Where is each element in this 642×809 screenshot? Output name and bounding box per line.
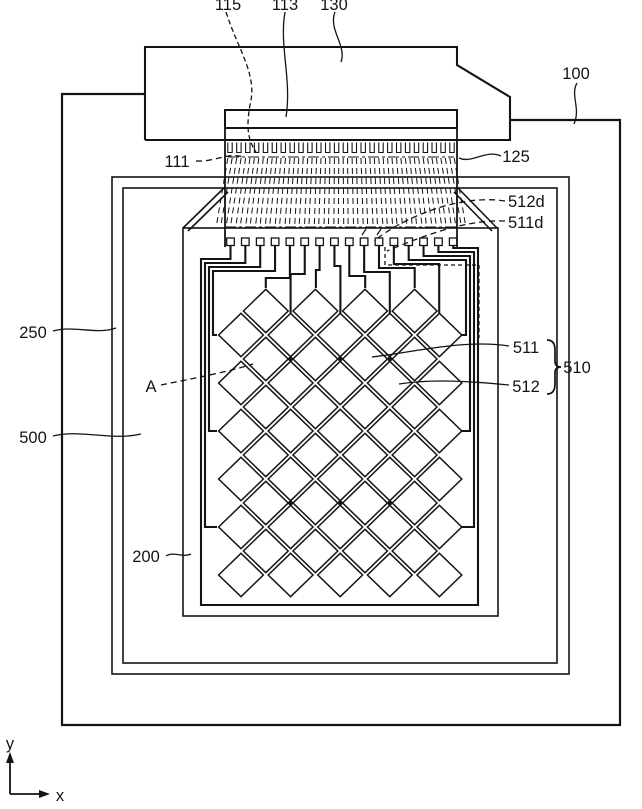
bond-pad	[360, 238, 368, 246]
label-511: 511	[513, 339, 539, 357]
diamond-cell	[293, 529, 338, 572]
bond-pad	[242, 238, 250, 246]
trace-drop-6	[364, 246, 390, 314]
fan-line	[401, 158, 407, 224]
leader-512d	[374, 200, 505, 241]
diamond-cell	[343, 529, 388, 572]
reference-labels: 115 113 130 100 111 125 512d 511d 250 A …	[19, 0, 591, 566]
label-115: 115	[215, 0, 241, 14]
fan-line	[295, 158, 299, 224]
lead-stub	[228, 143, 232, 153]
bonding-bar-113	[225, 110, 457, 128]
fan-line	[299, 158, 303, 224]
label-200: 200	[132, 548, 160, 566]
fan-line	[357, 158, 358, 224]
bridge-node	[386, 500, 393, 507]
fpc-130-outline	[145, 47, 510, 140]
fan-line	[231, 158, 241, 224]
frame-500	[123, 188, 557, 663]
fan-line	[388, 158, 393, 224]
diamond-cell	[268, 505, 313, 548]
fan-line	[338, 158, 339, 224]
diamond-cell	[318, 553, 363, 596]
diamond-cell	[392, 337, 437, 380]
label-130: 130	[320, 0, 348, 14]
lead-stub	[272, 143, 276, 153]
diamond-cell	[293, 337, 338, 380]
lead-stub	[281, 143, 285, 153]
diamond-cell	[293, 385, 338, 428]
fan-line	[348, 158, 349, 224]
lead-stub	[397, 143, 401, 153]
patent-figure: 115 113 130 100 111 125 512d 511d 250 A …	[0, 0, 642, 809]
frame-250	[112, 177, 569, 674]
fan-line	[379, 158, 383, 224]
leader-130	[333, 12, 342, 62]
diamond-cell	[392, 433, 437, 476]
trace-drop-1	[266, 246, 290, 289]
diamond-cell	[367, 505, 412, 548]
trace-left-3	[209, 246, 260, 432]
leader-115	[226, 12, 256, 152]
bond-pad	[346, 238, 354, 246]
pad-tick-marks	[362, 229, 381, 235]
fan-line	[423, 158, 431, 224]
fan-line	[319, 158, 321, 224]
bond-pad	[375, 238, 383, 246]
trace-right-3	[424, 246, 470, 432]
fan-line	[374, 158, 377, 224]
fan-line	[280, 158, 286, 224]
fan-line	[314, 158, 316, 224]
lead-stub	[441, 143, 445, 153]
trace-drop-2	[291, 246, 305, 314]
fan-line	[361, 158, 363, 224]
lead-stub	[361, 143, 365, 153]
bond-pad	[435, 238, 443, 246]
bond-pad	[449, 238, 457, 246]
lead-stub	[246, 143, 250, 153]
leader-500	[53, 434, 141, 437]
electrode-bridge-nodes	[287, 356, 393, 507]
diamond-cell	[392, 481, 437, 524]
fanout-lead-area	[217, 143, 466, 225]
label-512: 512	[512, 378, 540, 396]
diamond-cell	[268, 361, 313, 404]
fan-line	[334, 158, 335, 224]
fan-line	[256, 158, 263, 224]
diamond-cell	[392, 529, 437, 572]
lead-stub	[334, 143, 338, 153]
bridge-node	[337, 500, 344, 507]
lead-stub	[388, 143, 392, 153]
fan-line	[352, 158, 353, 224]
fan-line	[441, 158, 451, 224]
diamond-cell	[318, 505, 363, 548]
diamond-cell	[293, 289, 338, 332]
leader-200	[166, 554, 191, 556]
diamond-cell	[417, 505, 462, 548]
diamond-cell	[318, 409, 363, 452]
leader-125	[459, 154, 501, 159]
bridge-node	[386, 356, 393, 363]
lead-stub	[290, 143, 294, 153]
lead-stub	[423, 143, 427, 153]
axis-arrow-up-icon	[6, 752, 14, 763]
bridge-node	[287, 356, 294, 363]
fan-line	[236, 158, 245, 224]
fan-line	[454, 158, 465, 224]
leader-A	[161, 364, 253, 385]
diamond-cell	[367, 457, 412, 500]
lead-stub	[299, 143, 303, 153]
lead-stub	[317, 143, 321, 153]
diamond-cell	[367, 313, 412, 356]
leader-113	[283, 12, 287, 117]
bond-pad-row	[227, 238, 457, 246]
lead-stub	[432, 143, 436, 153]
bond-pad	[420, 238, 428, 246]
axis-indicator: y x	[6, 735, 65, 805]
bridge-node	[287, 500, 294, 507]
panel-corner-diagonals	[183, 187, 497, 231]
trace-right-2	[409, 246, 466, 336]
bond-pad	[301, 238, 309, 246]
diamond-cell	[343, 289, 388, 332]
bond-pad	[227, 238, 235, 246]
fan-line	[285, 158, 290, 224]
fan-line	[270, 158, 277, 224]
fan-line	[266, 158, 273, 224]
lead-stub	[343, 143, 347, 153]
figure-canvas: 115 113 130 100 111 125 512d 511d 250 A …	[0, 0, 642, 809]
fan-line	[410, 158, 417, 224]
leader-100	[574, 83, 577, 124]
fan-line	[450, 158, 461, 224]
fan-line	[414, 158, 422, 224]
diamond-cell	[268, 553, 313, 596]
label-511d: 511d	[508, 214, 543, 232]
label-512d: 512d	[508, 193, 545, 211]
bond-pad	[256, 238, 264, 246]
fan-line	[217, 158, 228, 224]
lead-stub	[352, 143, 356, 153]
diamond-cell	[318, 457, 363, 500]
diamond-cell	[219, 313, 264, 356]
diamond-cell	[243, 385, 288, 428]
fan-line	[343, 158, 344, 224]
diamond-cell	[417, 361, 462, 404]
diamond-cell	[367, 553, 412, 596]
bond-pad	[271, 238, 279, 246]
lead-stub	[263, 143, 267, 153]
diamond-cell	[343, 433, 388, 476]
trace-drop-5	[349, 246, 365, 289]
label-500: 500	[19, 429, 47, 447]
axis-arrow-right-icon	[39, 790, 50, 798]
fan-line	[436, 158, 445, 224]
diamond-cell	[219, 409, 264, 452]
fan-line	[365, 158, 367, 224]
label-510: 510	[563, 359, 591, 377]
lead-stub	[379, 143, 383, 153]
diamond-cell	[268, 313, 313, 356]
fan-line	[260, 158, 268, 224]
diamond-cell	[417, 409, 462, 452]
diamond-cell	[268, 457, 313, 500]
fan-line	[275, 158, 281, 224]
diamond-cell	[293, 481, 338, 524]
diamond-cell	[343, 337, 388, 380]
brace-510	[547, 340, 561, 394]
bond-pad	[286, 238, 294, 246]
diamond-cell	[343, 481, 388, 524]
diamond-cell	[392, 385, 437, 428]
label-111: 111	[164, 153, 189, 171]
fan-line	[370, 158, 373, 224]
bond-pad	[331, 238, 339, 246]
bond-pad	[316, 238, 324, 246]
diamond-cell	[243, 433, 288, 476]
lead-stub	[370, 143, 374, 153]
axis-x-label: x	[56, 787, 65, 805]
label-250: 250	[19, 324, 47, 342]
fan-line	[305, 158, 308, 224]
trace-drop-3	[316, 246, 320, 289]
fan-line	[329, 158, 330, 224]
axis-lines	[10, 760, 42, 794]
diamond-cell	[417, 313, 462, 356]
label-113: 113	[272, 0, 298, 14]
bridge-node	[337, 356, 344, 363]
diamond-electrode-matrix	[219, 289, 462, 596]
lead-stub	[414, 143, 418, 153]
leader-512	[399, 381, 509, 385]
fan-line	[250, 158, 258, 224]
lead-stub	[450, 143, 454, 153]
fan-line	[397, 158, 403, 224]
diamond-cell	[219, 457, 264, 500]
diamond-cell	[392, 289, 437, 332]
fan-line	[324, 158, 325, 224]
diamond-cell	[268, 409, 313, 452]
label-125: 125	[502, 148, 530, 166]
axis-y-label: y	[6, 735, 15, 753]
diamond-cell	[243, 529, 288, 572]
fan-line	[309, 158, 312, 224]
diamond-cell	[318, 361, 363, 404]
fan-line	[392, 158, 397, 224]
diamond-cell	[318, 313, 363, 356]
trace-drop-4	[334, 246, 340, 314]
label-100: 100	[562, 65, 590, 83]
diamond-cell	[243, 337, 288, 380]
fan-line	[428, 158, 436, 224]
fan-line	[246, 158, 254, 224]
fan-line	[290, 158, 295, 224]
bond-pad	[405, 238, 413, 246]
diamond-cell	[219, 553, 264, 596]
bond-pad	[390, 238, 398, 246]
fan-line	[383, 158, 387, 224]
fan-line	[405, 158, 412, 224]
fan-line	[432, 158, 441, 224]
lead-stub	[405, 143, 409, 153]
diamond-cell	[243, 289, 288, 332]
fan-line	[445, 158, 455, 224]
diamond-cell	[293, 433, 338, 476]
diamond-cell	[367, 409, 412, 452]
diamond-cell	[417, 553, 462, 596]
diamond-cell	[243, 481, 288, 524]
lead-stub	[326, 143, 330, 153]
lead-stub	[308, 143, 312, 153]
fan-line	[221, 158, 232, 224]
diamond-cell	[417, 457, 462, 500]
diamond-cell	[343, 385, 388, 428]
fan-line	[241, 158, 250, 224]
diamond-cell	[219, 505, 264, 548]
fan-line	[227, 158, 237, 224]
label-A: A	[145, 378, 156, 396]
lead-stub	[237, 143, 241, 153]
